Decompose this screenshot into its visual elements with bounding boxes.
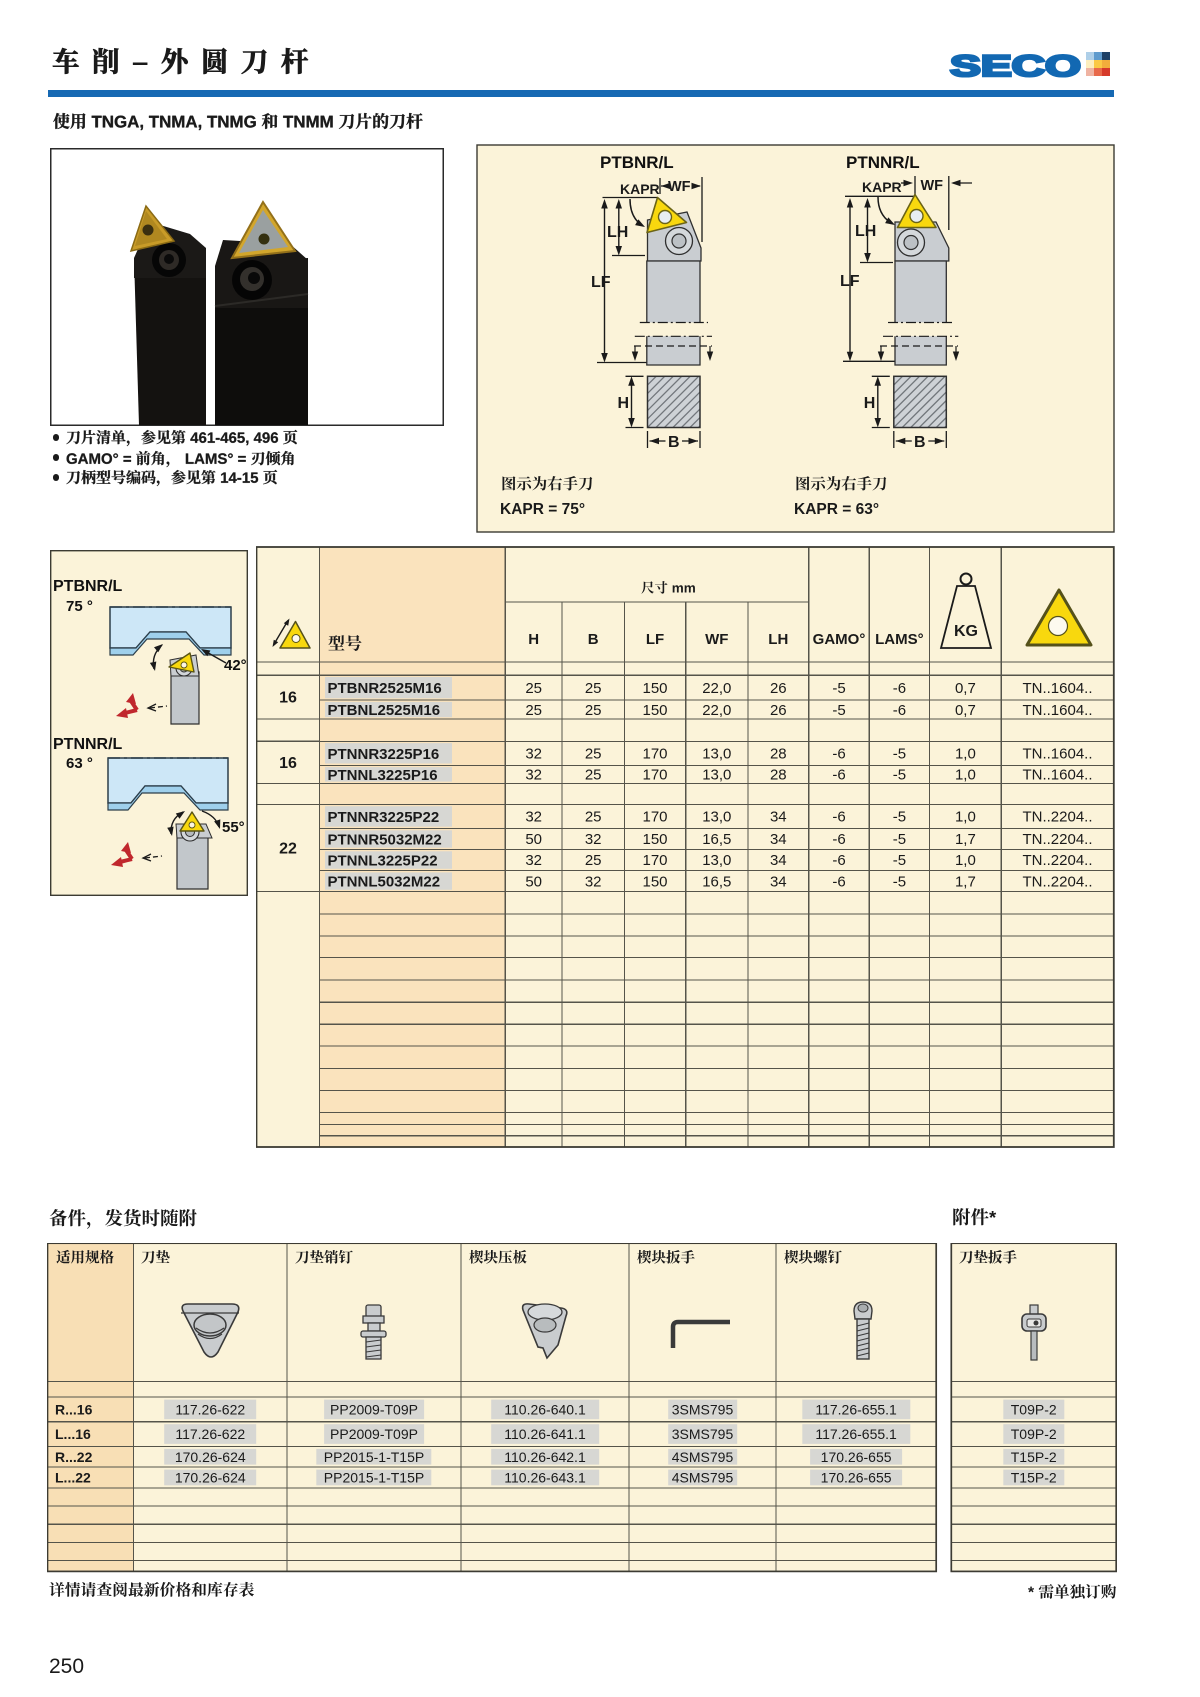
- svg-text:34: 34: [770, 809, 787, 826]
- svg-text:25: 25: [585, 767, 602, 784]
- svg-text:KG: KG: [954, 623, 978, 640]
- svg-text:16,5: 16,5: [702, 873, 731, 890]
- svg-text:B: B: [668, 434, 680, 451]
- svg-text:LF: LF: [840, 273, 860, 290]
- svg-text:117.26-655.1: 117.26-655.1: [815, 1401, 897, 1417]
- svg-text:1,7: 1,7: [955, 831, 976, 848]
- svg-text:-6: -6: [832, 746, 845, 763]
- svg-text:110.26-642.1: 110.26-642.1: [504, 1449, 586, 1465]
- svg-text:22,0: 22,0: [702, 680, 731, 697]
- svg-text:WF: WF: [705, 631, 728, 648]
- svg-text:KAPR = 75°: KAPR = 75°: [500, 501, 585, 518]
- svg-text:LH: LH: [855, 223, 876, 240]
- svg-text:150: 150: [642, 873, 667, 890]
- svg-text:42°: 42°: [224, 657, 247, 674]
- svg-text:0,7: 0,7: [955, 702, 976, 719]
- svg-text:32: 32: [585, 831, 602, 848]
- svg-text:-6: -6: [832, 873, 845, 890]
- svg-text:13,0: 13,0: [702, 852, 731, 869]
- svg-text:150: 150: [642, 831, 667, 848]
- svg-text:T09P-2: T09P-2: [1011, 1401, 1057, 1417]
- svg-text:H: H: [618, 395, 630, 412]
- svg-text:KAPR: KAPR: [620, 181, 660, 197]
- svg-text:150: 150: [642, 680, 667, 697]
- svg-text:PP2009-T09P: PP2009-T09P: [330, 1426, 418, 1442]
- svg-text:PTNNL3225P16: PTNNL3225P16: [328, 767, 438, 784]
- svg-text:TN..2204..: TN..2204..: [1022, 852, 1092, 869]
- svg-text:-5: -5: [893, 746, 906, 763]
- svg-text:L...22: L...22: [55, 1469, 91, 1485]
- svg-text:25: 25: [525, 680, 542, 697]
- svg-text:PP2015-1-T15P: PP2015-1-T15P: [324, 1469, 424, 1485]
- svg-text:PTBNR/L: PTBNR/L: [600, 153, 674, 172]
- svg-text:170: 170: [642, 809, 667, 826]
- svg-text:170.26-655: 170.26-655: [821, 1449, 892, 1465]
- svg-text:-6: -6: [832, 767, 845, 784]
- svg-text:TN..2204..: TN..2204..: [1022, 873, 1092, 890]
- svg-text:PTNNR/L: PTNNR/L: [53, 736, 123, 753]
- svg-text:LH: LH: [607, 224, 628, 241]
- svg-text:22,0: 22,0: [702, 702, 731, 719]
- svg-text:16,5: 16,5: [702, 831, 731, 848]
- svg-text:LF: LF: [646, 631, 664, 648]
- svg-text:PTNNR3225P22: PTNNR3225P22: [328, 809, 440, 826]
- svg-text:25: 25: [525, 702, 542, 719]
- svg-text:16: 16: [279, 755, 297, 772]
- svg-text:1,0: 1,0: [955, 767, 976, 784]
- svg-text:13,0: 13,0: [702, 809, 731, 826]
- svg-text:170.26-655: 170.26-655: [821, 1469, 892, 1485]
- svg-text:34: 34: [770, 873, 787, 890]
- svg-text:-5: -5: [832, 702, 845, 719]
- svg-text:75 °: 75 °: [66, 598, 93, 615]
- svg-text:T09P-2: T09P-2: [1011, 1426, 1057, 1442]
- svg-text:25: 25: [585, 852, 602, 869]
- svg-text:32: 32: [525, 809, 542, 826]
- svg-text:B: B: [914, 434, 926, 451]
- svg-text:4SMS795: 4SMS795: [672, 1469, 734, 1485]
- svg-text:SECO: SECO: [950, 50, 1081, 82]
- svg-text:-6: -6: [832, 852, 845, 869]
- svg-text:32: 32: [525, 852, 542, 869]
- svg-text:H: H: [864, 395, 876, 412]
- svg-text:TN..2204..: TN..2204..: [1022, 831, 1092, 848]
- svg-text:B: B: [588, 631, 599, 648]
- svg-text:170: 170: [642, 852, 667, 869]
- svg-text:3SMS795: 3SMS795: [672, 1401, 734, 1417]
- svg-text:LH: LH: [768, 631, 788, 648]
- svg-text:25: 25: [585, 809, 602, 826]
- svg-text:H: H: [528, 631, 539, 648]
- svg-text:50: 50: [525, 873, 542, 890]
- svg-text:PTNNR3225P16: PTNNR3225P16: [328, 746, 440, 763]
- svg-text:PTBNL2525M16: PTBNL2525M16: [328, 702, 441, 719]
- svg-text:TN..1604..: TN..1604..: [1022, 680, 1092, 697]
- svg-text:110.26-641.1: 110.26-641.1: [504, 1426, 586, 1442]
- svg-text:170: 170: [642, 767, 667, 784]
- svg-text:PP2009-T09P: PP2009-T09P: [330, 1401, 418, 1417]
- svg-text:4SMS795: 4SMS795: [672, 1449, 734, 1465]
- svg-text:-5: -5: [893, 809, 906, 826]
- svg-text:170.26-624: 170.26-624: [175, 1449, 246, 1465]
- svg-text:PTNNL3225P22: PTNNL3225P22: [328, 853, 438, 870]
- svg-text:TN..1604..: TN..1604..: [1022, 746, 1092, 763]
- svg-text:TN..1604..: TN..1604..: [1022, 767, 1092, 784]
- svg-text:25: 25: [585, 680, 602, 697]
- svg-text:16: 16: [279, 690, 297, 707]
- svg-text:R...22: R...22: [55, 1449, 93, 1465]
- svg-text:13,0: 13,0: [702, 767, 731, 784]
- svg-text:PTNNR5032M22: PTNNR5032M22: [328, 832, 442, 849]
- svg-text:T15P-2: T15P-2: [1011, 1469, 1057, 1485]
- svg-text:KAPR: KAPR: [862, 179, 902, 195]
- svg-text:PTBNR/L: PTBNR/L: [53, 578, 123, 595]
- svg-text:26: 26: [770, 702, 787, 719]
- svg-text:PTNNR/L: PTNNR/L: [846, 153, 920, 172]
- svg-text:22: 22: [279, 841, 297, 858]
- svg-text:-6: -6: [893, 702, 906, 719]
- svg-text:110.26-643.1: 110.26-643.1: [504, 1469, 586, 1485]
- svg-text:LF: LF: [591, 274, 611, 291]
- svg-text:34: 34: [770, 852, 787, 869]
- svg-text:1,0: 1,0: [955, 809, 976, 826]
- svg-text:25: 25: [585, 746, 602, 763]
- svg-text:-5: -5: [893, 852, 906, 869]
- svg-text:GAMO°: GAMO°: [813, 631, 866, 648]
- svg-text:34: 34: [770, 831, 787, 848]
- svg-text:T15P-2: T15P-2: [1011, 1449, 1057, 1465]
- svg-text:32: 32: [585, 873, 602, 890]
- svg-text:32: 32: [525, 746, 542, 763]
- svg-text:1,7: 1,7: [955, 873, 976, 890]
- svg-text:1,0: 1,0: [955, 852, 976, 869]
- svg-text:32: 32: [525, 767, 542, 784]
- svg-text:PP2015-1-T15P: PP2015-1-T15P: [324, 1449, 424, 1465]
- svg-text:25: 25: [585, 702, 602, 719]
- svg-text:L...16: L...16: [55, 1426, 91, 1442]
- svg-text:170.26-624: 170.26-624: [175, 1469, 246, 1485]
- svg-text:-5: -5: [893, 873, 906, 890]
- svg-text:63 °: 63 °: [66, 755, 93, 772]
- svg-text:26: 26: [770, 680, 787, 697]
- svg-text:55°: 55°: [222, 819, 245, 836]
- svg-text:3SMS795: 3SMS795: [672, 1426, 734, 1442]
- svg-text:50: 50: [525, 831, 542, 848]
- svg-text:170: 170: [642, 746, 667, 763]
- svg-text:-6: -6: [832, 809, 845, 826]
- svg-text:-6: -6: [832, 831, 845, 848]
- svg-text:117.26-655.1: 117.26-655.1: [815, 1426, 897, 1442]
- svg-text:-5: -5: [893, 767, 906, 784]
- svg-text:110.26-640.1: 110.26-640.1: [504, 1401, 586, 1417]
- svg-text:PTNNL5032M22: PTNNL5032M22: [328, 874, 441, 891]
- svg-text:-5: -5: [832, 680, 845, 697]
- svg-text:-5: -5: [893, 831, 906, 848]
- svg-text:0,7: 0,7: [955, 680, 976, 697]
- svg-text:R...16: R...16: [55, 1401, 93, 1417]
- svg-text:28: 28: [770, 746, 787, 763]
- svg-text:PTBNR2525M16: PTBNR2525M16: [328, 680, 442, 697]
- svg-text:LAMS°: LAMS°: [875, 631, 924, 648]
- svg-text:117.26-622: 117.26-622: [175, 1426, 245, 1442]
- svg-text:1,0: 1,0: [955, 746, 976, 763]
- svg-text:WF: WF: [921, 178, 944, 194]
- svg-text:KAPR = 63°: KAPR = 63°: [794, 501, 879, 518]
- svg-text:-6: -6: [893, 680, 906, 697]
- svg-text:28: 28: [770, 767, 787, 784]
- svg-text:13,0: 13,0: [702, 746, 731, 763]
- svg-text:150: 150: [642, 702, 667, 719]
- svg-text:TN..1604..: TN..1604..: [1022, 702, 1092, 719]
- svg-text:WF: WF: [668, 179, 691, 195]
- svg-text:117.26-622: 117.26-622: [175, 1401, 245, 1417]
- svg-text:TN..2204..: TN..2204..: [1022, 809, 1092, 826]
